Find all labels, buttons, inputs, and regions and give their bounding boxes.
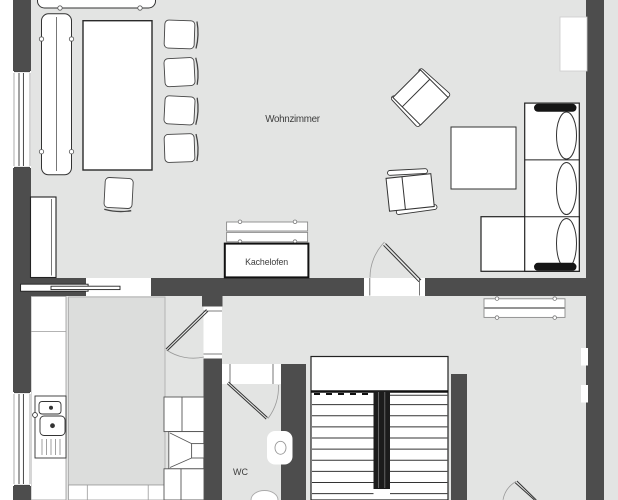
svg-text:WC: WC: [233, 467, 248, 477]
svg-text:Kachelofen: Kachelofen: [245, 257, 288, 267]
svg-text:Wohnzimmer: Wohnzimmer: [265, 114, 321, 125]
